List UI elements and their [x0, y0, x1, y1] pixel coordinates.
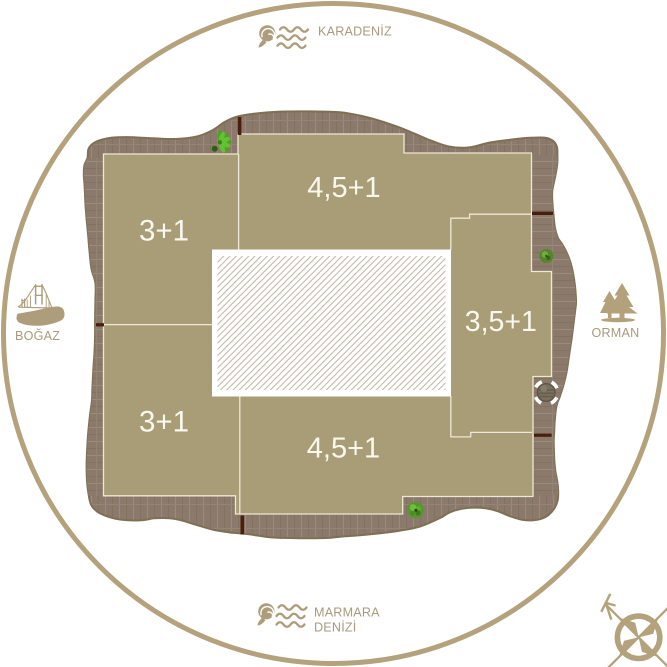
- svg-text:3,5+1: 3,5+1: [465, 306, 537, 338]
- svg-text:3+1: 3+1: [139, 215, 189, 248]
- svg-text:DENİZİ: DENİZİ: [314, 621, 356, 635]
- svg-text:4,5+1: 4,5+1: [307, 172, 380, 204]
- svg-text:BOĞAZ: BOĞAZ: [15, 328, 60, 343]
- svg-text:4,5+1: 4,5+1: [307, 433, 380, 465]
- svg-text:MARMARA: MARMARA: [314, 606, 380, 620]
- svg-text:KARADENİZ: KARADENİZ: [318, 25, 392, 39]
- svg-text:ORMAN: ORMAN: [592, 326, 640, 340]
- svg-text:3+1: 3+1: [139, 405, 189, 438]
